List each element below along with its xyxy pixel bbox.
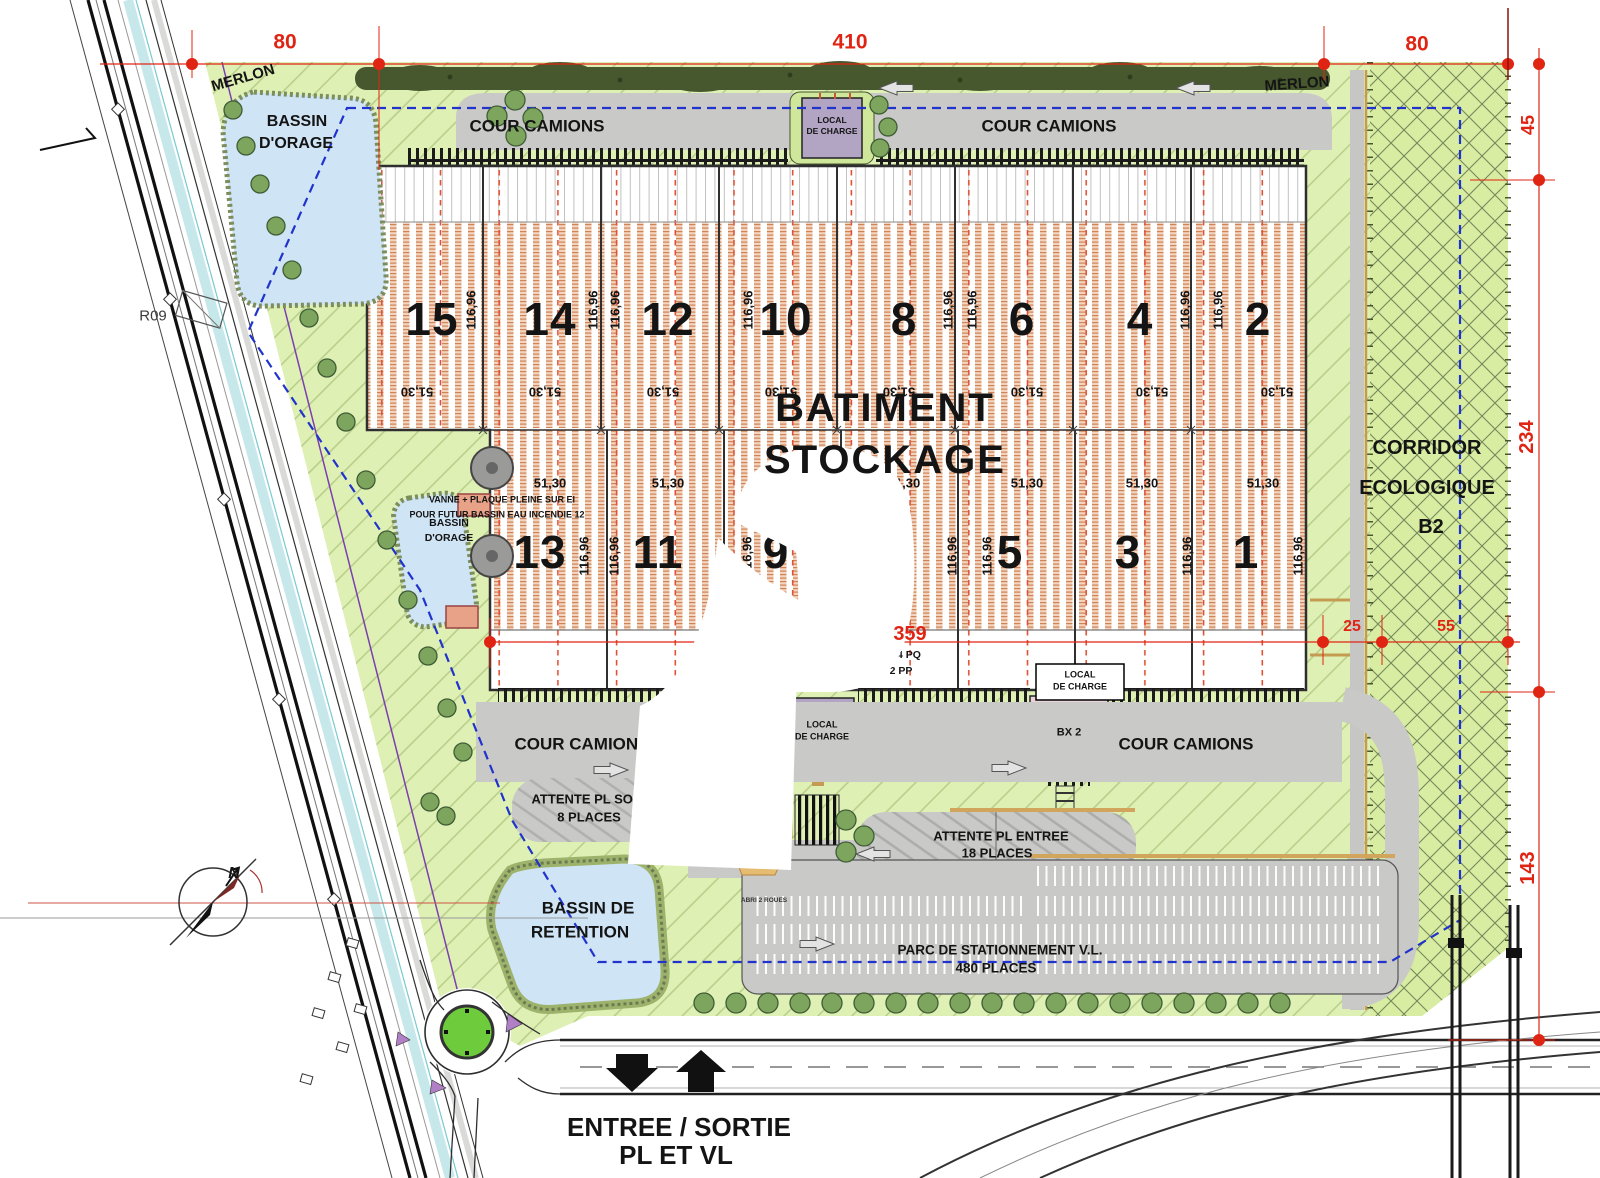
depth-label: 116,96 bbox=[741, 536, 754, 575]
depth-label: 116,96 bbox=[609, 290, 622, 329]
pq-count: 34 PQ bbox=[891, 650, 921, 661]
local-charge-bx2-1: LOCAL bbox=[1065, 671, 1096, 680]
bassin-retention-label-2: RETENTION bbox=[531, 924, 629, 941]
bay-label: 51,30 bbox=[1247, 477, 1280, 490]
dim-corridor-width: 55 bbox=[1437, 619, 1455, 635]
vanne-note-1: VANNE + PLAQUE PLEINE SUR EI bbox=[429, 496, 575, 505]
compass-icon bbox=[170, 859, 262, 945]
pp-count: 2 PP bbox=[890, 666, 913, 677]
cell-number: 5 bbox=[997, 529, 1024, 575]
cell-number: 4 bbox=[1127, 296, 1154, 342]
depth-label: 116,96 bbox=[578, 536, 591, 575]
bay-label: 51,30 bbox=[1126, 477, 1159, 490]
cour-camions-bottom-left: COUR CAMIONS bbox=[514, 736, 649, 753]
bay-label: 51,30 bbox=[1261, 386, 1294, 399]
r09-label: R09 bbox=[139, 309, 167, 324]
cour-camions-top-right: COUR CAMIONS bbox=[981, 118, 1116, 135]
corridor-label-2: ECOLOGIQUE bbox=[1359, 478, 1495, 498]
attente-entree-label-2: 18 PLACES bbox=[962, 847, 1033, 860]
depth-label: 116,96 bbox=[465, 290, 478, 329]
local-charge-north-2: DE CHARGE bbox=[806, 127, 857, 136]
cell-number: 15 bbox=[405, 296, 458, 342]
entrance-label-1: ENTREE / SORTIE bbox=[567, 1114, 791, 1140]
bay-label: 51,30 bbox=[529, 386, 562, 399]
bay-label: 51,30 bbox=[647, 386, 680, 399]
parking-lot bbox=[742, 854, 1398, 994]
local-charge-south-2: DE CHARGE bbox=[795, 733, 849, 742]
local-charge-north-1: LOCAL bbox=[817, 116, 846, 125]
cell-number: 1 bbox=[1233, 529, 1260, 575]
cour-camions-bottom-right: COUR CAMIONS bbox=[1118, 736, 1253, 753]
local-charge-bx2-2: DE CHARGE bbox=[1053, 683, 1107, 692]
bassin-orage-label-2: D'ORAGE bbox=[259, 136, 333, 152]
bassin-retention-label-1: BASSIN DE bbox=[542, 900, 635, 917]
depth-label: 116,96 bbox=[966, 290, 979, 329]
depth-label: 116,96 bbox=[1179, 290, 1192, 329]
cell-number: 13 bbox=[513, 529, 566, 575]
depth-label: 116,96 bbox=[742, 290, 755, 329]
cell-number: 9 bbox=[763, 529, 790, 575]
bay-label: 51,30 bbox=[401, 386, 434, 399]
dim-top-left: 80 bbox=[273, 32, 296, 53]
attente-sortie-label-1: ATTENTE PL SORTIE bbox=[532, 793, 663, 806]
dim-top-right: 80 bbox=[1405, 34, 1428, 55]
cell-number: 3 bbox=[1115, 529, 1142, 575]
bay-label: 51,30 bbox=[1136, 386, 1169, 399]
bx2-label: BX 2 bbox=[1057, 728, 1081, 739]
corridor-label-3: B2 bbox=[1418, 517, 1444, 537]
dim-right-upper: 45 bbox=[1519, 115, 1537, 135]
cell-number: 8 bbox=[891, 296, 918, 342]
depth-label: 116,96 bbox=[1292, 536, 1305, 575]
bay-label: 51,30 bbox=[1011, 386, 1044, 399]
depth-label: 116,96 bbox=[946, 536, 959, 575]
site-plan: 80 410 80 45 234 143 359 25 55 MERLON ME… bbox=[0, 0, 1600, 1178]
cell-number: 10 bbox=[759, 296, 812, 342]
attente-sortie-label-2: 8 PLACES bbox=[557, 811, 621, 824]
parking-label-2: 480 PLACES bbox=[955, 961, 1036, 975]
dim-top-center: 410 bbox=[832, 32, 867, 53]
dim-right-middle: 234 bbox=[1517, 420, 1537, 453]
bx1-label: BX 1 bbox=[711, 723, 735, 734]
bassin-orage2-label-1: BASSIN bbox=[429, 518, 469, 529]
cell-number: 2 bbox=[1245, 296, 1272, 342]
bay-label: 51,30 bbox=[534, 477, 567, 490]
attente-entree-label-1: ATTENTE PL ENTREE bbox=[933, 830, 1068, 843]
depth-label: 116,96 bbox=[1212, 290, 1225, 329]
local-charge-south-1: LOCAL bbox=[807, 721, 838, 730]
dim-offset: 25 bbox=[1343, 619, 1361, 635]
north-label: N bbox=[228, 866, 240, 882]
cell-number: 11 bbox=[633, 529, 684, 575]
depth-label: 116,96 bbox=[608, 536, 621, 575]
dim-building-width: 359 bbox=[893, 624, 926, 644]
building-title-2: STOCKAGE bbox=[764, 440, 1006, 480]
entrance-label-2: PL ET VL bbox=[619, 1142, 733, 1168]
depth-label: 116,96 bbox=[942, 290, 955, 329]
corridor-label-1: CORRIDOR bbox=[1373, 438, 1482, 458]
building-title-1: BATIMENT bbox=[775, 388, 995, 428]
dim-right-lower: 143 bbox=[1518, 851, 1538, 884]
cell-number: 12 bbox=[641, 296, 694, 342]
merlon-label-right: MERLON bbox=[1264, 74, 1330, 93]
depth-label: 116,96 bbox=[981, 536, 994, 575]
site-plan-drawing bbox=[0, 0, 1600, 1178]
cell-number: 14 bbox=[523, 296, 576, 342]
abri-label: ABRI 2 ROUES bbox=[741, 898, 787, 905]
cell-number: 6 bbox=[1009, 296, 1036, 342]
cour-camions-top-left: COUR CAMIONS bbox=[469, 118, 604, 135]
depth-label: 116,96 bbox=[587, 290, 600, 329]
bassin-orage2-label-2: D'ORAGE bbox=[425, 533, 474, 544]
bassin-orage-label-1: BASSIN bbox=[267, 114, 327, 130]
parking-label-1: PARC DE STATIONNEMENT V.L. bbox=[897, 943, 1102, 957]
depth-label: 116,96 bbox=[1181, 536, 1194, 575]
bay-label: 51,30 bbox=[1011, 477, 1044, 490]
bay-label: 51,30 bbox=[652, 477, 685, 490]
